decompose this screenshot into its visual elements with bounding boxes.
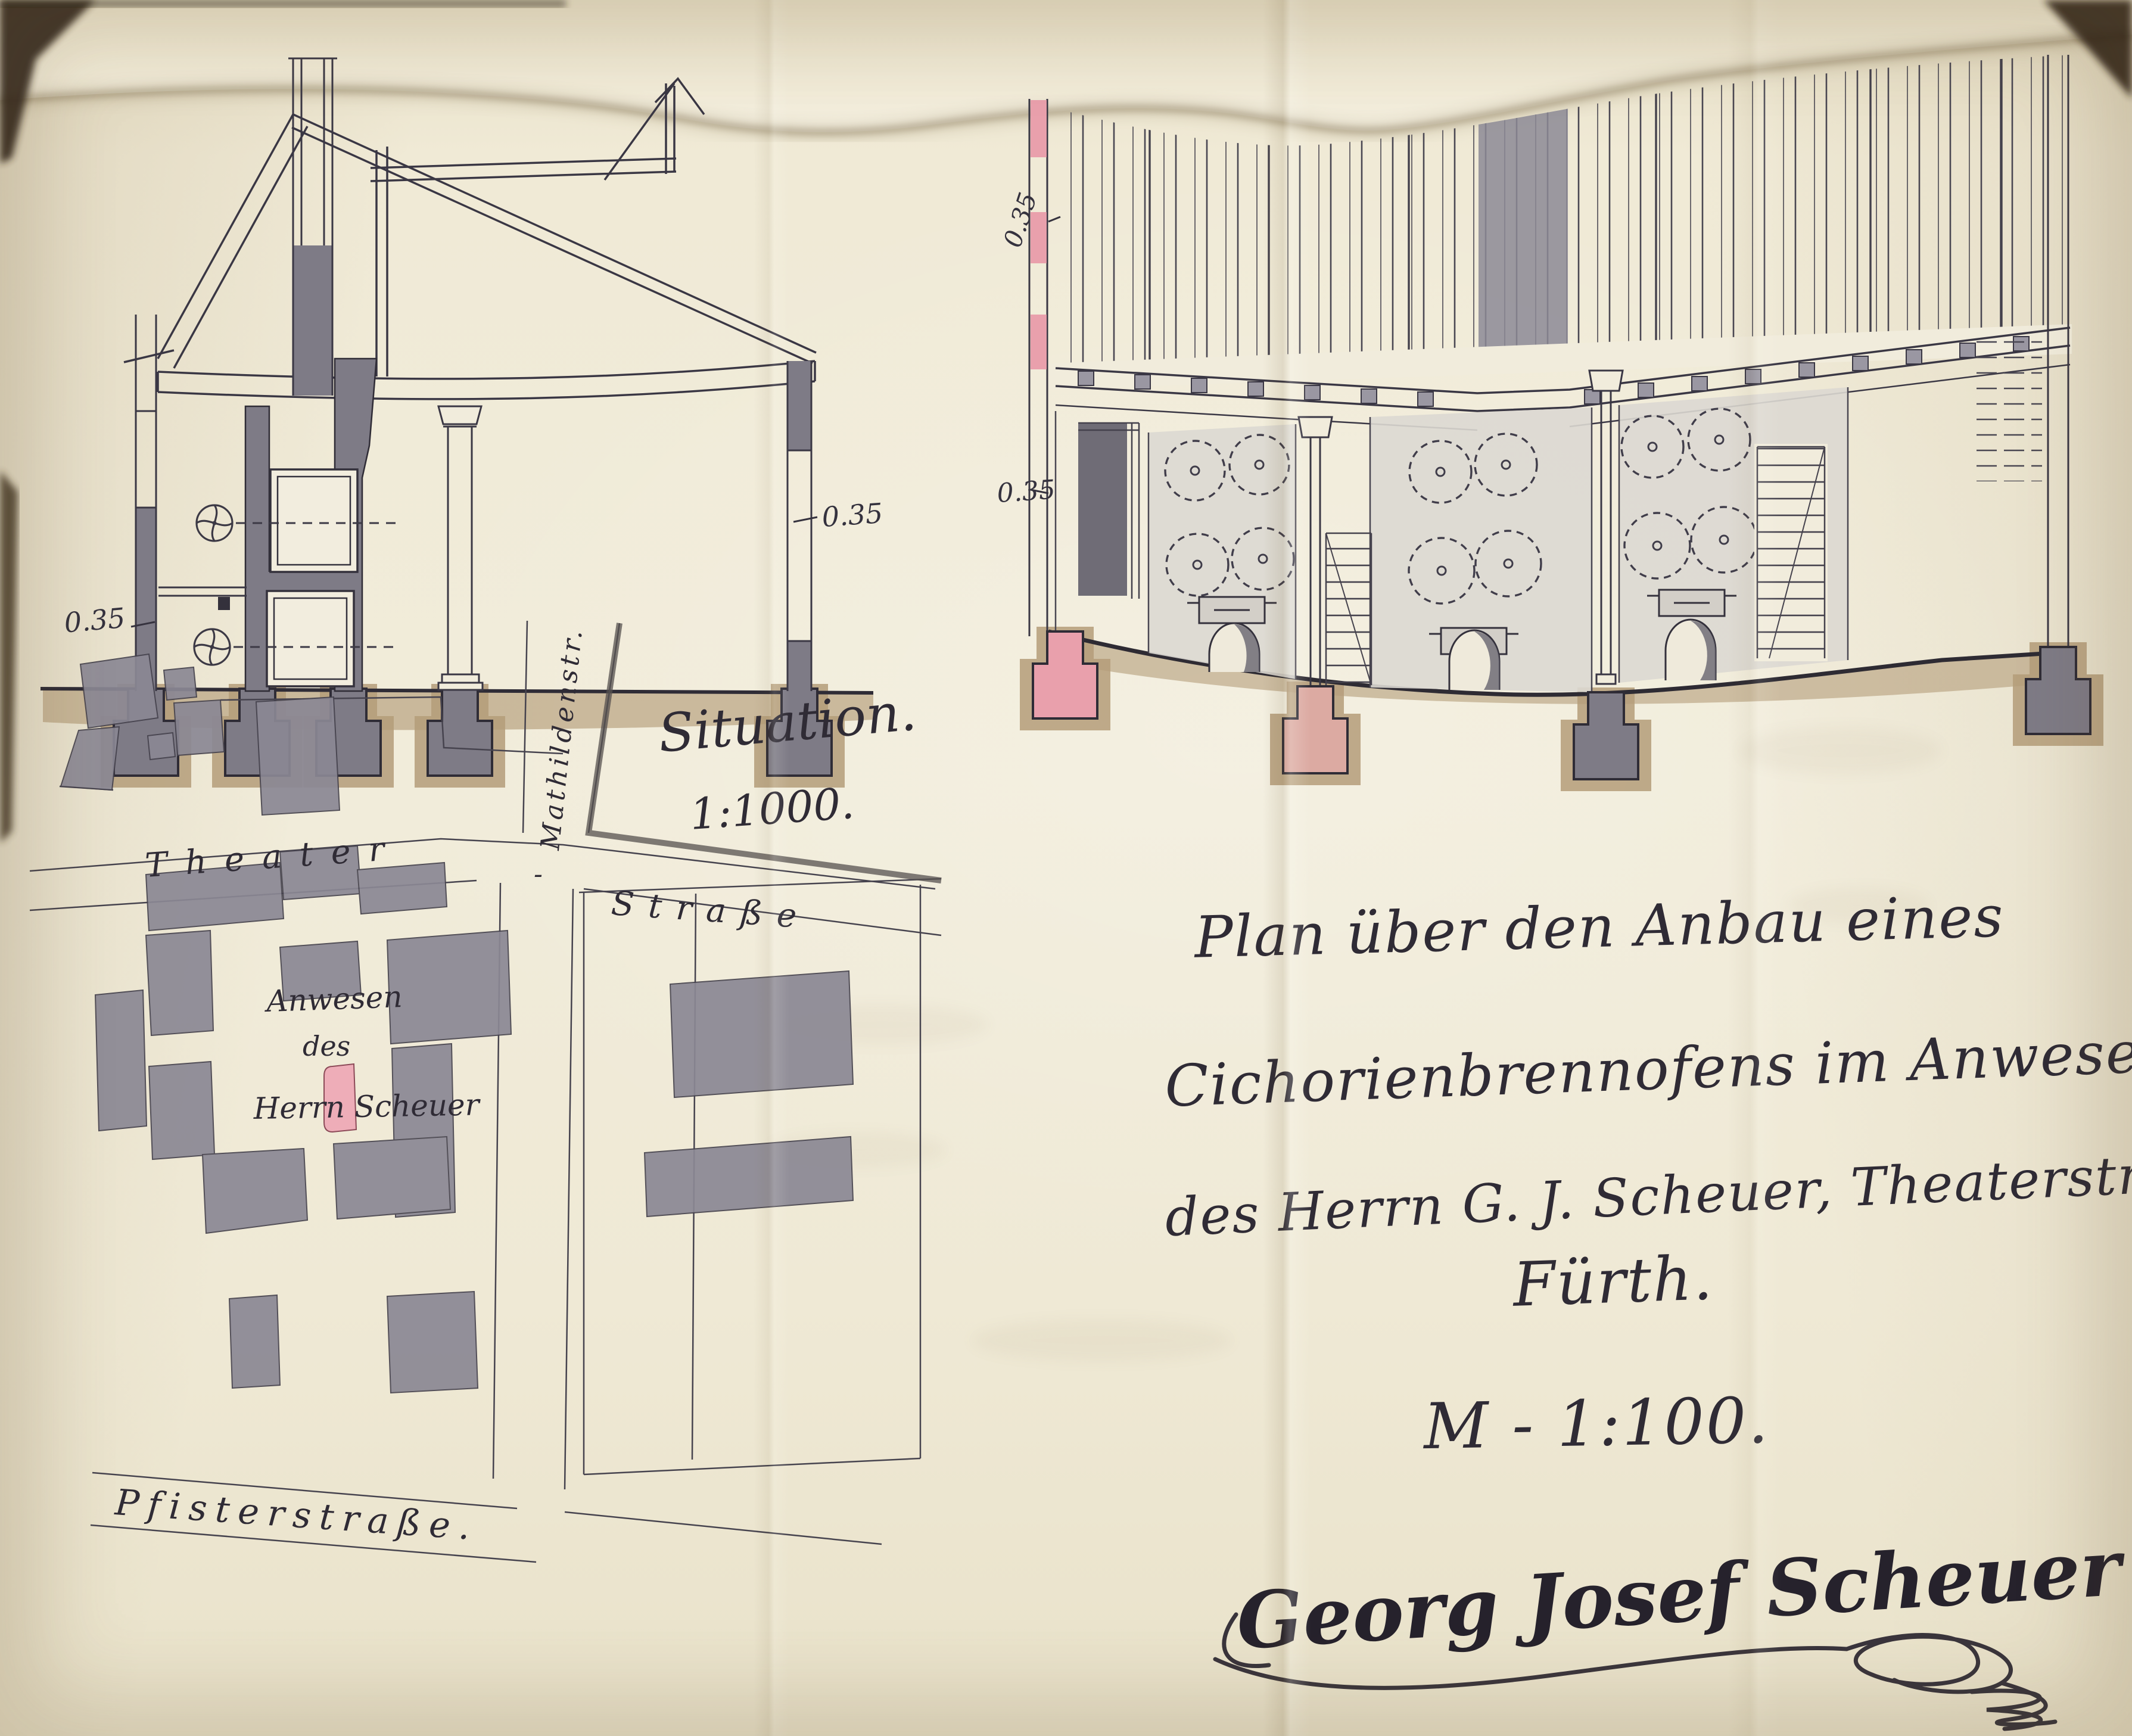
column (1589, 371, 1623, 684)
dim-label: 0.35 (996, 474, 1056, 509)
drawing-scale-label: M - 1:100. (1423, 1384, 1770, 1463)
site-plan: Situation. 1:1000. Theater - Straße Math… (24, 614, 953, 1597)
damper-fan-icon (197, 505, 232, 541)
staircase-right (1754, 444, 1828, 661)
buildings (61, 654, 853, 1393)
longitudinal-section-drawing: 0.35 0.35 (989, 30, 2109, 822)
site-plan-title: Situation. (656, 680, 919, 764)
ceiling-beam (158, 361, 815, 399)
dimension-labels: 0.35 0.35 (996, 189, 1060, 509)
property-label-line2: des (303, 1030, 350, 1062)
staircase-left (1326, 533, 1371, 685)
oven-chamber-upper (270, 469, 357, 572)
street-label-mathildenstrasse: Mathildenstr. (535, 625, 589, 852)
site-plan-scale: 1:1000. (688, 778, 855, 839)
street-label-separator: - (534, 859, 543, 889)
signature-flourish (1179, 1603, 2109, 1736)
dim-label: 0.35 (821, 497, 882, 533)
title-line-4: Fürth. (1512, 1243, 1714, 1321)
stoke-door (1187, 597, 1277, 623)
scanned-plan-page: 0.35 0.35 (0, 0, 2132, 1736)
dark-top-edge (0, 0, 566, 7)
street-label-pfisterstrasse: Pfisterstraße. (113, 1482, 480, 1549)
left-wall-pink-rod (1029, 99, 1047, 636)
chimney-shaft (1479, 54, 1568, 381)
doorway (1078, 423, 1127, 596)
property-label-line3: Herrn Scheuer (253, 1087, 481, 1126)
chimney (288, 58, 337, 396)
dashed-stair-plan (1973, 332, 2042, 481)
roof-truss (124, 79, 816, 377)
property-label-line1: Anwesen (263, 979, 403, 1019)
street-label-strasse: Straße (610, 884, 812, 937)
stoke-door (1647, 590, 1736, 616)
dark-left-edge (0, 471, 18, 843)
